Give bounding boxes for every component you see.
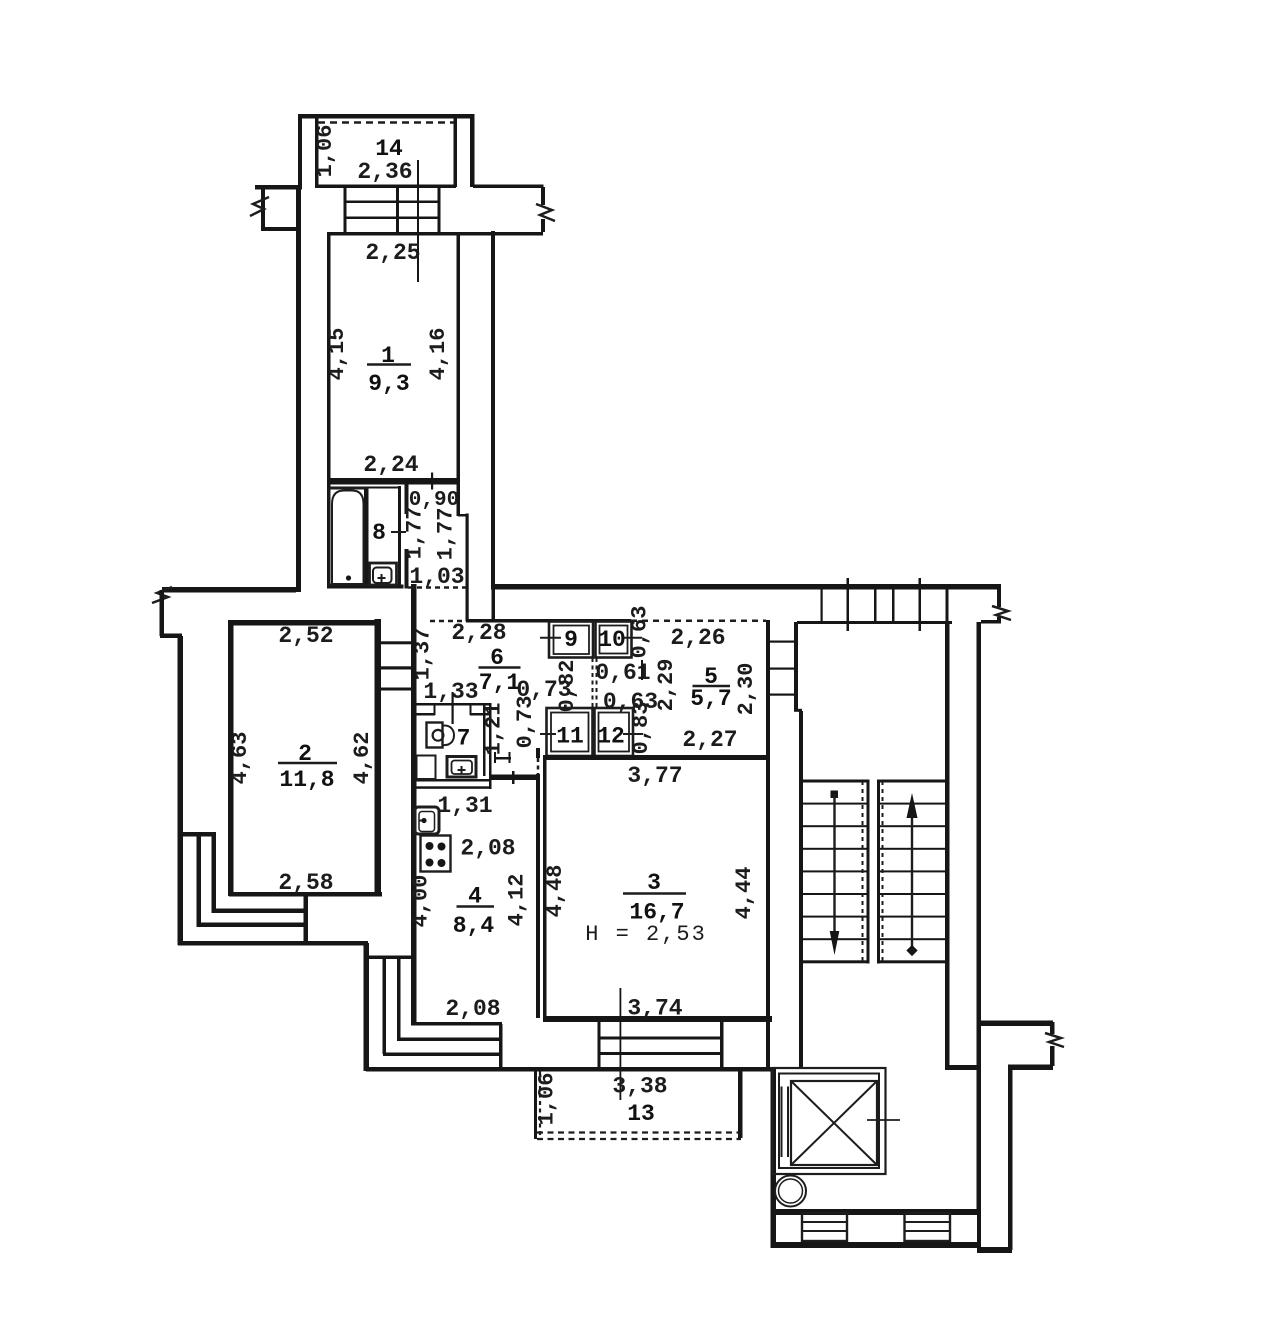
svg-text:1,77: 1,77 [434, 508, 459, 561]
svg-text:0,82: 0,82 [555, 660, 580, 713]
svg-text:4,12: 4,12 [505, 874, 530, 927]
svg-text:10: 10 [598, 627, 626, 653]
svg-text:2,52: 2,52 [278, 623, 333, 649]
svg-text:2,58: 2,58 [278, 870, 333, 896]
svg-text:0,63: 0,63 [627, 606, 652, 659]
svg-text:7: 7 [457, 726, 471, 752]
svg-text:7,1: 7,1 [479, 670, 520, 696]
svg-text:1,33: 1,33 [423, 679, 478, 705]
svg-text:4,00: 4,00 [409, 875, 434, 928]
svg-text:1,77: 1,77 [403, 507, 428, 560]
svg-text:2,27: 2,27 [682, 727, 737, 753]
svg-text:8,4: 8,4 [453, 913, 495, 939]
svg-text:4,16: 4,16 [426, 328, 451, 381]
svg-text:1,03: 1,03 [409, 564, 464, 590]
svg-text:4,15: 4,15 [325, 328, 350, 381]
svg-text:H = 2,53: H = 2,53 [585, 922, 707, 947]
svg-text:11,8: 11,8 [279, 767, 334, 793]
svg-text:12: 12 [597, 724, 625, 750]
svg-text:4,63: 4,63 [228, 732, 253, 785]
svg-text:3,77: 3,77 [627, 763, 682, 789]
svg-text:1,06: 1,06 [534, 1073, 559, 1126]
svg-text:1,06: 1,06 [313, 125, 338, 178]
svg-text:2,25: 2,25 [365, 240, 420, 266]
svg-text:3: 3 [647, 870, 661, 896]
svg-text:2,30: 2,30 [734, 663, 759, 716]
svg-text:2,08: 2,08 [445, 996, 500, 1022]
svg-text:2,26: 2,26 [670, 625, 725, 651]
svg-text:9,3: 9,3 [368, 371, 409, 397]
svg-text:0,73: 0,73 [513, 696, 538, 749]
svg-text:4,62: 4,62 [350, 732, 375, 785]
svg-text:5,7: 5,7 [690, 686, 731, 712]
svg-text:2,29: 2,29 [654, 659, 679, 712]
svg-text:1,31: 1,31 [437, 793, 492, 819]
svg-text:13: 13 [627, 1101, 655, 1127]
svg-text:3,38: 3,38 [612, 1074, 667, 1100]
svg-text:9: 9 [564, 627, 578, 653]
svg-text:1,21: 1,21 [482, 703, 507, 756]
svg-text:2,08: 2,08 [460, 836, 515, 862]
svg-text:8: 8 [372, 520, 386, 546]
svg-text:11: 11 [556, 724, 584, 750]
svg-text:4,48: 4,48 [543, 865, 568, 918]
svg-text:2,36: 2,36 [357, 159, 412, 185]
svg-text:2,28: 2,28 [451, 620, 506, 646]
svg-text:4,44: 4,44 [732, 867, 757, 920]
svg-text:2,24: 2,24 [363, 452, 418, 478]
svg-text:3,74: 3,74 [627, 996, 682, 1022]
